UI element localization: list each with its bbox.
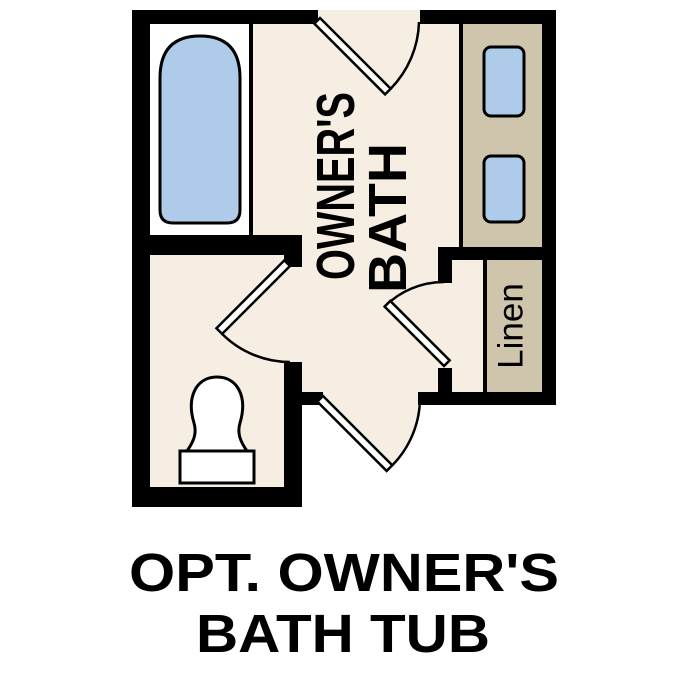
wall-bottom-right bbox=[418, 392, 556, 405]
toilet-tank bbox=[180, 451, 254, 483]
wall-linen-door-stub-lower bbox=[438, 368, 452, 392]
wall-left bbox=[132, 10, 150, 507]
wall-tub-wc-divider bbox=[132, 235, 302, 255]
wall-top-right bbox=[420, 10, 556, 24]
wall-top-left bbox=[132, 10, 318, 24]
floor-plan-canvas: OWNER'S BATH Linen OPT. OWNER'S BATH TUB bbox=[0, 0, 687, 687]
floor-plan-figure: OWNER'S BATH Linen OPT. OWNER'S BATH TUB bbox=[0, 0, 687, 687]
wall-wc-east bbox=[284, 362, 302, 507]
caption-line2: BATH TUB bbox=[196, 604, 490, 664]
linen-closet-label: Linen bbox=[492, 283, 531, 369]
wall-linen-door-stub-upper bbox=[438, 247, 452, 283]
linen-vestibule-floor bbox=[452, 260, 487, 392]
vanity-sink-left bbox=[484, 47, 524, 116]
wall-linen-top bbox=[438, 247, 556, 260]
wall-right bbox=[542, 10, 556, 405]
owners-bath-label-line2: BATH bbox=[358, 143, 418, 293]
caption-line1: OPT. OWNER'S bbox=[129, 543, 559, 603]
bathtub bbox=[160, 36, 240, 223]
linen-closet-edge-line bbox=[483, 260, 487, 392]
vanity-counter-edge-line bbox=[459, 24, 463, 247]
owners-bath-label-line1: OWNER'S bbox=[306, 92, 366, 280]
wall-wc-bottom bbox=[132, 487, 302, 507]
tub-alcove-edge-line bbox=[249, 24, 253, 235]
toilet-bowl bbox=[187, 377, 247, 451]
top-doorway-floor bbox=[318, 10, 420, 24]
vanity-sink-right bbox=[484, 156, 524, 222]
